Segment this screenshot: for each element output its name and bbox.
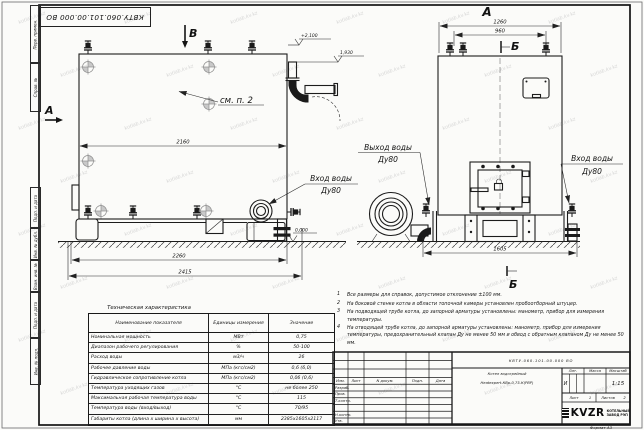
margin-cell-inv-dubl: Инв. № дубл. bbox=[30, 227, 41, 261]
spec-cell-value: 50-100 bbox=[269, 343, 334, 353]
dim-1605: 1605 bbox=[493, 247, 507, 253]
spec-cell-value: не более 250 bbox=[269, 384, 334, 394]
see-note-text: см. п. 2 bbox=[220, 96, 253, 106]
dim-1260: 1260 bbox=[493, 20, 507, 26]
note-item: 4На отводящей трубе котла, до запорной а… bbox=[337, 325, 628, 347]
view-label-b: В bbox=[189, 27, 197, 40]
note-text: Все размеры для справок, допустимое откл… bbox=[347, 292, 628, 299]
rotated-doc-number-stamp: КВТУ.060.101.00.000 ВО bbox=[39, 7, 151, 27]
spec-cell-value: 0,6 (6,0) bbox=[269, 364, 334, 374]
sheets-label: Листов bbox=[596, 393, 620, 402]
ground-side bbox=[58, 242, 346, 248]
company-name: КОТЕЛЬНЫЙ ЗАВОД РЭП bbox=[607, 409, 630, 417]
col-list: Лист bbox=[348, 378, 364, 385]
front-view-label-a: А bbox=[481, 5, 491, 19]
view-arrow-a: А bbox=[44, 104, 63, 123]
role-ncontrol: Н.контр. bbox=[335, 411, 364, 418]
product-name-line1: Котел водогрейный bbox=[452, 369, 562, 378]
outlet-assembly-front bbox=[417, 204, 437, 242]
margin-label: Подп. и дата bbox=[33, 194, 38, 221]
section-b-bottom: Б bbox=[507, 266, 517, 291]
level-1930: 1,930 bbox=[340, 50, 353, 56]
margin-cell-podp-data1: Подп. и дата bbox=[30, 187, 41, 229]
sheets-value: 2 bbox=[620, 393, 629, 402]
spec-cell-units: °С bbox=[209, 384, 269, 394]
spec-cell-value: 70/95 bbox=[269, 404, 334, 414]
base-skid-side bbox=[76, 219, 291, 241]
note-text: На подводящей трубе котла, до запорной а… bbox=[347, 309, 628, 323]
spec-cell-name: Номинальная мощность bbox=[89, 333, 209, 343]
inlet-callout-front: Вход воды Ду80 bbox=[561, 154, 623, 203]
scale-value: 1:15 bbox=[606, 374, 630, 393]
kvzr-logo-text: KVZR bbox=[571, 407, 605, 419]
notes-list: 1Все размеры для справок, допустимое отк… bbox=[337, 292, 628, 348]
spec-header-value: Значение bbox=[269, 314, 334, 333]
col-sign: Подп. bbox=[406, 378, 429, 385]
level-plus-2100: +2,100 bbox=[301, 33, 318, 39]
role-checker: Пров. bbox=[335, 391, 364, 398]
inlet-label-1: Вход воды bbox=[571, 154, 613, 163]
title-block: КВТУ.060.101.00.000 ВО Котел водогрейный… bbox=[333, 352, 630, 424]
spec-cell-value: 2385х1605х2117 bbox=[269, 415, 334, 425]
spec-cell-name: Температура воды (вход/выход) bbox=[89, 404, 209, 414]
margin-label: Подп. и дата bbox=[33, 301, 38, 328]
outlet-label-1: Выход воды bbox=[364, 143, 412, 152]
stamp-text: КВТУ.060.101.00.000 ВО bbox=[46, 13, 144, 22]
kvzr-logo-icon bbox=[562, 408, 569, 418]
spec-cell-units: мм bbox=[209, 415, 269, 425]
front-dimensions: 1260 960 1605 bbox=[423, 20, 577, 258]
spec-cell-units: МВт bbox=[209, 333, 269, 343]
note-item: 3На подводящей трубе котла, до запорной … bbox=[337, 309, 628, 323]
spec-cell-units: °С bbox=[209, 394, 269, 404]
note-item: 1Все размеры для справок, допустимое отк… bbox=[337, 292, 628, 299]
engineering-drawing-page: kotlab.kv.kzkotlab.kv.kzkotlab.kv.kzkotl… bbox=[0, 0, 644, 430]
mass-label: Масса bbox=[584, 368, 606, 374]
sheet-label: Лист bbox=[563, 393, 585, 402]
note-number: 1 bbox=[337, 292, 347, 299]
top-hatch bbox=[523, 78, 549, 98]
view-arrow-b: В bbox=[182, 25, 197, 48]
section-b-top: Б bbox=[501, 40, 519, 53]
inlet-assembly-front bbox=[564, 204, 580, 242]
spec-cell-units: м3/ч bbox=[209, 353, 269, 363]
spec-cell-units: МПа (кгс/см2) bbox=[209, 364, 269, 374]
margin-label: Перв. примен. bbox=[33, 19, 38, 49]
padlock-icon bbox=[495, 179, 503, 190]
level-0000: 0,000 bbox=[295, 228, 308, 234]
note-text: На боковой стенке котла в области топочн… bbox=[347, 301, 628, 308]
note-number: 3 bbox=[337, 309, 347, 323]
sheet-value: 1 bbox=[585, 393, 595, 402]
spec-cell-units: % bbox=[209, 343, 269, 353]
view-label-a: А bbox=[44, 104, 54, 117]
outlet-label-2: Ду80 bbox=[377, 155, 398, 164]
spec-table-title: Техническая характеристика bbox=[88, 305, 210, 311]
col-izm: Изм. bbox=[333, 378, 348, 385]
margin-cell-perv-primen: Перв. примен. bbox=[30, 5, 41, 64]
spec-cell-name: Температура уходящих газов bbox=[89, 384, 209, 394]
section-label-b-bottom: Б bbox=[509, 278, 517, 291]
spec-header-name: Наименование показателя bbox=[89, 314, 209, 333]
role-tcontrol: Т.контр. bbox=[335, 398, 364, 405]
margin-label: Инв. № подл. bbox=[33, 347, 38, 375]
spec-cell-value: 26 bbox=[269, 353, 334, 363]
company-name-line2: ЗАВОД РЭП bbox=[607, 413, 630, 417]
spec-header-units: Единицы измерения bbox=[209, 314, 269, 333]
role-approver: Утв. bbox=[335, 418, 364, 425]
format-note: Формат А3 bbox=[572, 425, 630, 430]
col-doc: N докум. bbox=[364, 378, 406, 385]
margin-cell-vzam-inv: Взам. инв. № bbox=[30, 259, 41, 293]
note-item: 2На боковой стенке котла в области топоч… bbox=[337, 301, 628, 308]
section-label-b-top: Б bbox=[511, 40, 519, 53]
role-designer: Разраб. bbox=[335, 384, 364, 391]
margin-cell-sprav-no: Справ. № bbox=[30, 62, 41, 112]
inlet-flange-side bbox=[250, 200, 272, 222]
margin-cell-inv-podl: Инв. № подл. bbox=[30, 337, 41, 385]
spec-cell-name: Диапазон рабочего регулирования bbox=[89, 343, 209, 353]
product-name-line2: Heatexpert-КВр-0,75-К(РВР) bbox=[452, 378, 562, 387]
note-number: 4 bbox=[337, 325, 347, 347]
spec-cell-value: 0,06 (0,6) bbox=[269, 374, 334, 384]
lit-value: И bbox=[562, 374, 569, 393]
door-hinge-bottom bbox=[523, 197, 530, 203]
note-text: На отводящей трубе котла, до запорной ар… bbox=[347, 325, 628, 347]
margin-label: Взам. инв. № bbox=[33, 262, 38, 289]
margin-cell-podp-data2: Подп. и дата bbox=[30, 291, 41, 339]
spec-cell-name: Габариты котла (длина х ширина х высота) bbox=[89, 415, 209, 425]
company-logo: KVZR КОТЕЛЬНЫЙ ЗАВОД РЭП bbox=[562, 402, 630, 424]
spec-cell-name: Максимальная рабочая температура воды bbox=[89, 394, 209, 404]
door-hinge-top bbox=[523, 171, 530, 177]
dim-2260: 2260 bbox=[172, 254, 186, 260]
door-handle bbox=[471, 188, 488, 192]
boiler-side-view: 2160 2260 2415 +2,100 1,930 0,000 bbox=[44, 25, 364, 280]
boiler-front-view: 1260 960 1605 А Б Б Выход воды bbox=[357, 5, 623, 291]
inlet-callout-side: Вход воды Ду80 bbox=[269, 174, 358, 204]
spec-cell-units: °С bbox=[209, 404, 269, 414]
spec-cell-value: 115 bbox=[269, 394, 334, 404]
margin-label: Справ. № bbox=[33, 77, 38, 96]
inlet-label-2: Ду80 bbox=[320, 186, 341, 195]
ground-front bbox=[357, 242, 580, 248]
level-marks: +2,100 1,930 0,000 bbox=[288, 33, 364, 242]
inlet-label-1: Вход воды bbox=[310, 174, 352, 183]
note-number: 2 bbox=[337, 301, 347, 308]
spec-cell-value: 0,75 bbox=[269, 333, 334, 343]
spec-table: Наименование показателя Единицы измерени… bbox=[88, 313, 335, 426]
dim-960: 960 bbox=[495, 29, 506, 35]
col-date: Дата bbox=[429, 378, 452, 385]
dim-2160: 2160 bbox=[176, 140, 190, 146]
spec-cell-name: Рабочее давление воды bbox=[89, 364, 209, 374]
spec-cell-units: МПа (кгс/см2) bbox=[209, 374, 269, 384]
outlet-callout-front: Выход воды Ду80 bbox=[358, 143, 429, 205]
doc-number: КВТУ.060.101.00.000 ВО bbox=[452, 353, 630, 368]
margin-label: Инв. № дубл. bbox=[33, 230, 38, 257]
base-pedestal-front bbox=[465, 215, 535, 242]
outlet-elbow-side bbox=[286, 62, 341, 121]
dim-2415: 2415 bbox=[178, 270, 192, 276]
see-note-callout: см. п. 2 bbox=[179, 92, 264, 107]
spec-cell-name: Гидравлическое сопротивление котла bbox=[89, 374, 209, 384]
spec-cell-name: Расход воды bbox=[89, 353, 209, 363]
inlet-label-2: Ду80 bbox=[581, 167, 602, 176]
